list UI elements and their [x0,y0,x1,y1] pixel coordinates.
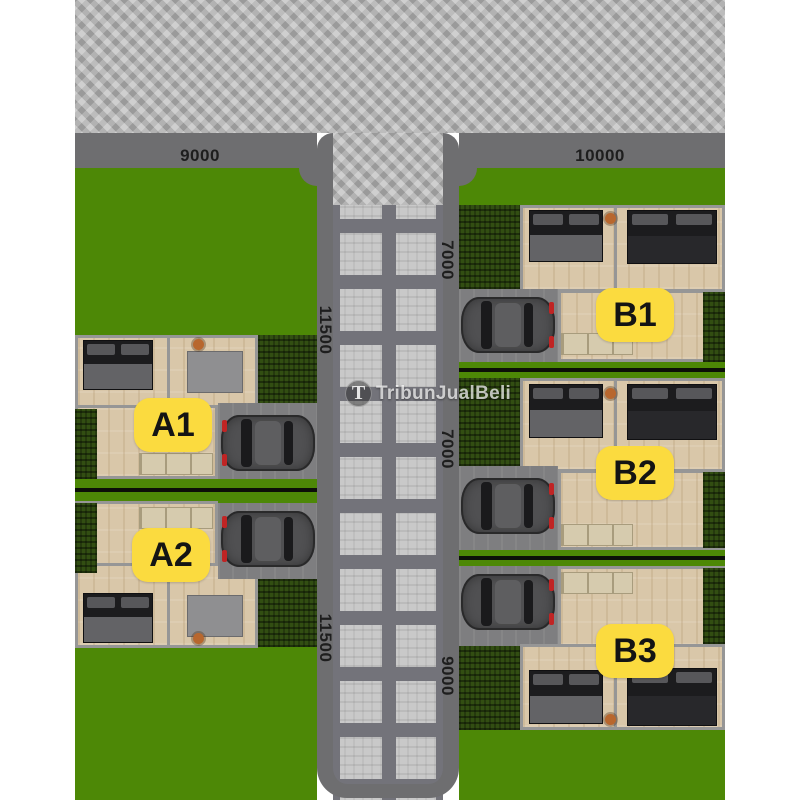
garden-hedge [459,646,520,730]
dimension-label: 7000 [437,230,457,290]
bed [83,593,153,643]
main-road-pavement [75,0,725,133]
road-junction-pavement [333,133,443,205]
watermark: T TribunJualBeli [345,380,511,407]
dimension-label: 9000 [160,146,240,166]
lot-divider [459,362,725,378]
watermark-text: TribunJualBeli [376,383,511,405]
lot-label-a2: A2 [132,528,210,582]
dimension-label: 9000 [437,646,457,706]
garden-hedge [703,472,725,548]
garden-hedge [75,409,97,479]
site-plan: 9000 10000 7000 11500 7000 11500 9000 A1… [0,0,800,800]
bed [627,384,717,440]
lot-label-b1: B1 [596,288,674,342]
car [461,297,555,353]
lot-label-b3: B3 [596,624,674,678]
bed [529,210,603,262]
garden-hedge [459,205,520,289]
vertical-road-pavement [333,205,443,800]
car [221,511,315,567]
plant-decor [193,633,204,644]
lot-label-a1: A1 [134,398,212,452]
plant-decor [605,388,616,399]
cabinet-row [139,453,213,475]
curb-bottom-curve [317,752,459,798]
car [461,574,555,630]
dimension-label: 10000 [555,146,645,166]
cabinet-row [139,507,213,529]
plant-decor [605,714,616,725]
garden-hedge [258,575,318,647]
watermark-logo-icon: T [345,380,372,407]
lot-divider [459,550,725,566]
cabinet-row [561,524,633,546]
sofa [187,595,243,637]
garden-hedge [75,503,97,573]
house-b3 [459,566,725,730]
plant-decor [605,213,616,224]
lot-label-b2: B2 [596,446,674,500]
dimension-label: 11500 [315,295,335,365]
bed [529,670,603,724]
garden-hedge [703,568,725,644]
car [221,415,315,471]
bed [83,340,153,390]
dimension-label: 11500 [315,603,335,673]
sofa [187,351,243,393]
lot-divider [75,479,317,501]
garden-hedge [258,335,318,407]
plant-decor [193,339,204,350]
cabinet-row [561,572,633,594]
car [461,478,555,534]
bed [627,210,717,264]
garden-hedge [703,292,725,362]
bed [529,384,603,438]
house-b1 [459,205,725,362]
dimension-label: 7000 [437,419,457,479]
